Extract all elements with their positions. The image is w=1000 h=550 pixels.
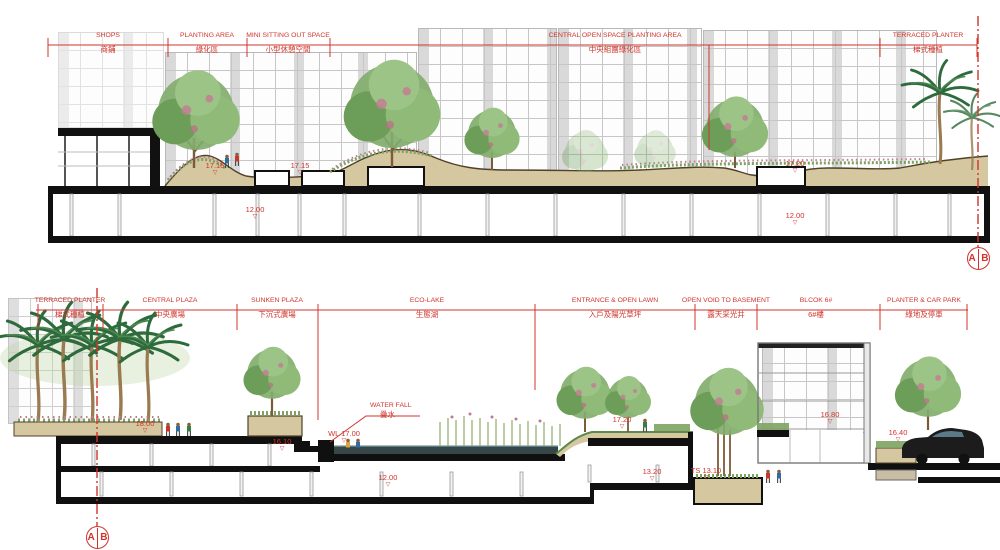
zone-en: ENTRANCE & OPEN LAWN (572, 298, 658, 305)
zone-label-planter-carpark: PLANTER & CAR PARK 綠地及停車 (887, 298, 961, 318)
zone-zh: 中央廣場 (143, 311, 198, 319)
zone-en: PLANTER & CAR PARK (887, 298, 961, 305)
zone-label-sunken-plaza: SUNKEN PLAZA 下沉式廣場 (251, 298, 303, 318)
dimension-annotations (36, 288, 968, 526)
lawn-slope (556, 424, 693, 490)
level-triangle-icon: ▽ (280, 446, 285, 451)
level-marker: 12.00 ▽ (379, 474, 398, 487)
level-marker: 16.80 ▽ (821, 411, 840, 424)
zone-zh: 梯式種植 (893, 46, 964, 54)
marker-divider (97, 528, 99, 548)
zone-zh: 商鋪 (96, 46, 120, 54)
level-triangle-icon: ▽ (896, 437, 901, 442)
section-letter-a: A (969, 253, 976, 264)
tree (344, 60, 441, 167)
zone-zh: 下沉式廣場 (251, 311, 303, 319)
steps (294, 436, 318, 452)
level-marker: 16.10 ▽ (273, 438, 292, 451)
zone-zh: 梯式種植 (35, 311, 106, 319)
tree (690, 368, 764, 435)
zone-zh: 綠地及停車 (887, 311, 961, 319)
waterfall-callout: WATER FALL 疊水 (370, 402, 412, 420)
zone-en: SUNKEN PLAZA (251, 298, 303, 305)
zone-label-shops: SHOPS 商鋪 (96, 33, 120, 53)
zone-en: PLANTING AREA (180, 33, 234, 40)
tree (895, 356, 961, 430)
section-letter-b: B (981, 253, 988, 264)
level-triangle-icon: ▽ (793, 168, 798, 173)
level-marker: 17.20 ▽ (786, 160, 805, 173)
level-marker: TS 13.10 ▽ (691, 467, 721, 480)
top-section: SHOPS 商鋪 PLANTING AREA 綠化區 MINI SITTING … (0, 0, 1000, 270)
waterfall-zh: 疊水 (370, 410, 412, 419)
level-marker: 17.15 ▽ (291, 162, 310, 175)
level-triangle-icon: ▽ (828, 419, 833, 424)
zone-label-entrance-lawn: ENTRANCE & OPEN LAWN 入戶及陽光草坪 (572, 298, 658, 318)
level-triangle-icon: ▽ (620, 424, 625, 429)
tree (562, 130, 608, 172)
level-triangle-icon: ▽ (704, 475, 709, 480)
level-marker: 13.20 ▽ (643, 468, 662, 481)
zone-label-central-plaza: CENTRAL PLAZA 中央廣場 (143, 298, 198, 318)
bottom-section: TERRACED PLANTER 梯式種植 CENTRAL PLAZA 中央廣場… (0, 270, 1000, 550)
level-marker: 17.20 ▽ (613, 416, 632, 429)
section-marker-ab: AB (967, 247, 990, 270)
level-marker: 16.40 ▽ (889, 429, 908, 442)
zone-zh: 入戶及陽光草坪 (572, 311, 658, 319)
level-triangle-icon: ▽ (650, 476, 655, 481)
zone-zh: 6#樓 (800, 311, 833, 319)
zone-en: MINI SITTING OUT SPACE (246, 33, 330, 40)
zone-en: CENTRAL OPEN SPACE PLANTING AREA (549, 33, 682, 40)
tree (152, 70, 239, 168)
section-marker-ab: AB (86, 526, 109, 549)
zone-zh: 中央組團綠化區 (549, 46, 682, 54)
level-marker: 17.15 ▽ (206, 162, 225, 175)
level-triangle-icon: ▽ (143, 428, 148, 433)
tree (464, 108, 519, 170)
block6-structure (757, 343, 870, 463)
eco-lake (330, 446, 565, 461)
shops-structure (58, 128, 162, 186)
zone-en: TERRACED PLANTER (893, 33, 964, 40)
tree (634, 130, 675, 168)
section-letter-b: B (100, 532, 107, 543)
zone-en: ECO-LAKE (410, 298, 444, 305)
zone-label-terraced-planter: TERRACED PLANTER 梯式種植 (893, 33, 964, 53)
zone-zh: 小型休憩空間 (246, 46, 330, 54)
zone-en: SHOPS (96, 33, 120, 40)
zone-label-terraced-planter: TERRACED PLANTER 梯式種植 (35, 298, 106, 318)
level-triangle-icon: ▽ (386, 482, 391, 487)
tree (702, 96, 768, 168)
level-triangle-icon: ▽ (253, 214, 258, 219)
zone-label-mini-sitting: MINI SITTING OUT SPACE 小型休憩空間 (246, 33, 330, 53)
level-marker: 12.00 ▽ (786, 212, 805, 225)
reed-planting (440, 413, 560, 447)
tree (243, 347, 300, 399)
zone-label-planting-area: PLANTING AREA 綠化區 (180, 33, 234, 53)
marker-divider (978, 249, 980, 269)
zone-en: CENTRAL PLAZA (143, 298, 198, 305)
level-triangle-icon: ▽ (342, 438, 347, 443)
section-letter-a: A (88, 532, 95, 543)
level-marker: 18.00 ▽ (136, 420, 155, 433)
zone-label-eco-lake: ECO-LAKE 生態湖 (410, 298, 444, 318)
level-triangle-icon: ▽ (213, 170, 218, 175)
zone-en: BLCOK 6# (800, 298, 833, 305)
zone-zh: 生態湖 (410, 311, 444, 319)
zone-en: OPEN VOID TO BASEMENT (682, 298, 770, 305)
tree (556, 367, 613, 432)
zone-zh: 露天采光井 (682, 311, 770, 319)
zone-label-open-void: OPEN VOID TO BASEMENT 露天采光井 (682, 298, 770, 318)
drawing-canvas: SHOPS 商鋪 PLANTING AREA 綠化區 MINI SITTING … (0, 0, 1000, 550)
podium-structure (48, 186, 990, 243)
level-triangle-icon: ▽ (298, 170, 303, 175)
level-triangle-icon: ▽ (793, 220, 798, 225)
zone-zh: 綠化區 (180, 46, 234, 54)
level-marker: 12.00 ▽ (246, 206, 265, 219)
zone-label-central-open-space: CENTRAL OPEN SPACE PLANTING AREA 中央組團綠化區 (549, 33, 682, 53)
zone-label-block6: BLCOK 6# 6#樓 (800, 298, 833, 318)
zone-en: TERRACED PLANTER (35, 298, 106, 305)
palm-tree (902, 60, 1000, 170)
top-section-drawing (0, 0, 1000, 270)
water-level-marker: WL 17.00 ▽ (328, 430, 360, 443)
